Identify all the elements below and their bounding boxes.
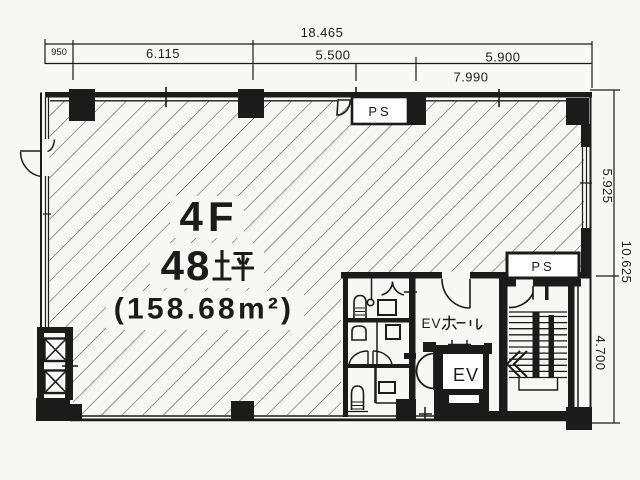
svg-text:18.465: 18.465 [301,25,344,40]
svg-text:6.115: 6.115 [146,46,180,61]
svg-text:5.900: 5.900 [485,50,520,65]
svg-text:(158.68m²): (158.68m²) [114,293,294,326]
svg-text:4F: 4F [179,193,238,240]
svg-text:4.700: 4.700 [593,335,608,370]
svg-text:PS: PS [368,104,391,119]
svg-text:950: 950 [51,47,67,58]
svg-text:5.925: 5.925 [600,168,615,203]
svg-text:48: 48 [161,242,212,289]
svg-text:5.500: 5.500 [315,48,350,63]
svg-text:PS: PS [531,259,554,274]
svg-text:7.990: 7.990 [453,70,488,85]
svg-text:EV: EV [453,365,479,385]
svg-text:EV: EV [421,316,441,331]
svg-text:10.625: 10.625 [619,241,634,284]
